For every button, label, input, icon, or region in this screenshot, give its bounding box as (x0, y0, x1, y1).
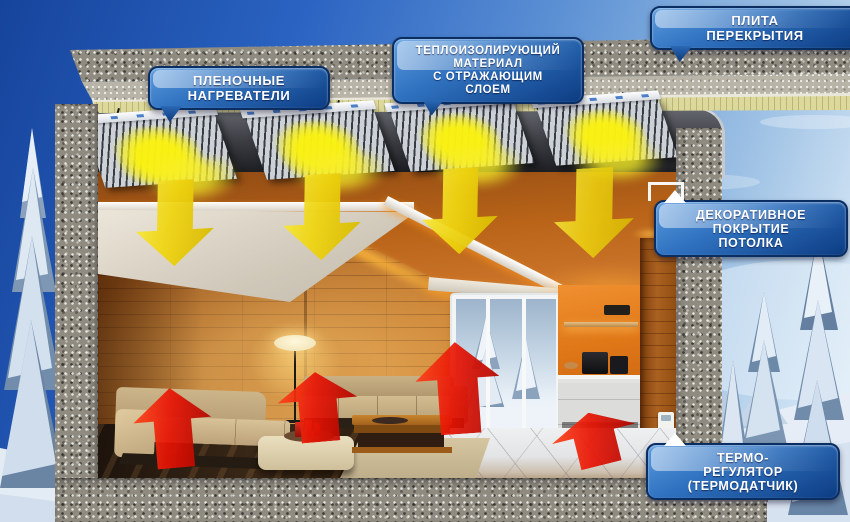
scheme-film-ceiling-heating: ПЛЕНОЧНЫЕ НАГРЕВАТЕЛИ ТЕПЛОИЗОЛИРУЮЩИЙ М… (0, 0, 850, 522)
coffee-table-shelf (352, 447, 452, 453)
callout-line: ПОКРЫТИЕ (662, 222, 840, 236)
callout-line: ТЕРМО- (654, 451, 832, 465)
kitchen-shelf (564, 322, 638, 327)
coffee-table-shelf-cavity (358, 433, 444, 447)
callout-line: (ТЕРМОДАТЧИК) (654, 479, 832, 493)
callout-line: ПЛИТА (658, 14, 850, 29)
concrete-column-right (676, 128, 722, 480)
window-mullion (522, 297, 526, 432)
callout-thermostat: ТЕРМО- РЕГУЛЯТОР (ТЕРМОДАТЧИК) (646, 443, 840, 500)
table-tray (372, 417, 408, 424)
kitchen-bowl (564, 362, 578, 369)
coffee-table-front (354, 425, 450, 433)
callout-line: НАГРЕВАТЕЛИ (156, 89, 322, 104)
coffee-table (352, 415, 452, 461)
thermostat-display (661, 415, 671, 421)
callout-line: РЕГУЛЯТОР (654, 465, 832, 479)
window-mullion (486, 297, 490, 432)
callout-line: СЛОЕМ (400, 84, 576, 97)
callout-line: ТЕПЛОИЗОЛИРУЮЩИЙ (400, 45, 576, 58)
callout-line: ДЕКОРАТИВНОЕ (662, 208, 840, 222)
concrete-column-left (55, 104, 98, 522)
callout-line: ПЕРЕКРЫТИЯ (658, 29, 850, 44)
callout-line: ПОТОЛКА (662, 236, 840, 250)
callout-film-heaters: ПЛЕНОЧНЫЕ НАГРЕВАТЕЛИ (148, 66, 330, 110)
callout-line: МАТЕРИАЛ (400, 58, 576, 71)
callout-line: С ОТРАЖАЮЩИМ (400, 71, 576, 84)
callout-line: ПЛЕНОЧНЫЕ (156, 74, 322, 89)
callout-slab: ПЛИТА ПЕРЕКРЫТИЯ (650, 6, 850, 50)
callout-ceiling-cover: ДЕКОРАТИВНОЕ ПОКРЫТИЕ ПОТОЛКА (654, 200, 848, 257)
kitchen-appliance (610, 356, 628, 374)
callout-insulation: ТЕПЛОИЗОЛИРУЮЩИЙ МАТЕРИАЛ С ОТРАЖАЮЩИМ С… (392, 37, 584, 104)
floor-lamp-shade (274, 335, 316, 351)
kitchen-hood-lamp (604, 305, 630, 315)
kitchen-appliance (582, 352, 608, 374)
